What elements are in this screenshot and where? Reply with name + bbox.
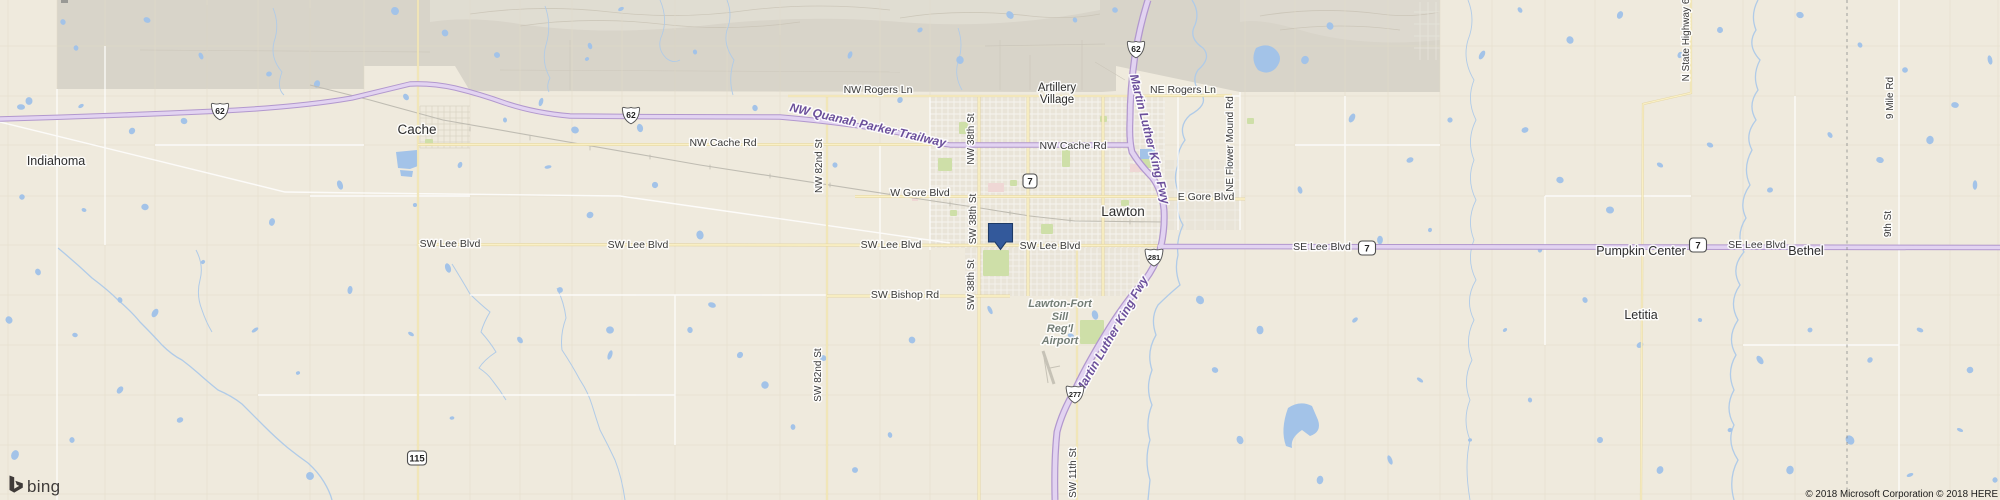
svg-text:NW Rogers Ln: NW Rogers Ln	[844, 84, 913, 96]
svg-text:SW Lee Blvd: SW Lee Blvd	[1020, 240, 1081, 252]
svg-text:9th St: 9th St	[1883, 211, 1894, 237]
svg-text:Bethel: Bethel	[1788, 244, 1823, 258]
svg-text:62: 62	[1131, 44, 1141, 54]
svg-text:Cache: Cache	[397, 122, 436, 137]
svg-text:© 2018 Microsoft Corporation ©: © 2018 Microsoft Corporation © 2018 HERE	[1805, 489, 1998, 500]
svg-text:NE Flower Mound Rd: NE Flower Mound Rd	[1225, 96, 1236, 192]
svg-text:NW Cache Rd: NW Cache Rd	[689, 137, 756, 149]
svg-text:Lawton: Lawton	[1101, 204, 1145, 219]
svg-text:SW Lee Blvd: SW Lee Blvd	[608, 239, 669, 251]
svg-text:SW Bishop Rd: SW Bishop Rd	[871, 289, 939, 301]
svg-text:E Gore Blvd: E Gore Blvd	[1178, 191, 1235, 203]
svg-text:277: 277	[1069, 390, 1081, 399]
svg-text:Artillery: Artillery	[1038, 82, 1077, 94]
svg-text:62: 62	[626, 110, 636, 120]
svg-text:bing: bing	[27, 477, 60, 496]
svg-text:Indiahoma: Indiahoma	[27, 154, 85, 168]
svg-text:N State Highway 6: N State Highway 6	[1681, 0, 1692, 81]
svg-text:SE Lee Blvd: SE Lee Blvd	[1293, 241, 1351, 253]
svg-text:7: 7	[1027, 177, 1032, 188]
svg-text:7: 7	[1695, 241, 1700, 252]
svg-text:9 Mile Rd: 9 Mile Rd	[1885, 77, 1896, 119]
svg-text:SW 38th St: SW 38th St	[968, 193, 979, 244]
svg-text:SW 11th St: SW 11th St	[1068, 448, 1079, 498]
svg-text:NW 38th St: NW 38th St	[966, 113, 977, 164]
svg-text:SW 82nd St: SW 82nd St	[813, 348, 824, 402]
svg-text:SW Lee Blvd: SW Lee Blvd	[861, 239, 922, 251]
svg-text:NW Cache Rd: NW Cache Rd	[1039, 140, 1106, 152]
svg-text:Airport: Airport	[1041, 335, 1080, 347]
svg-text:Village: Village	[1040, 94, 1074, 106]
svg-text:SW Lee Blvd: SW Lee Blvd	[420, 238, 481, 250]
svg-text:SE Lee Blvd: SE Lee Blvd	[1728, 239, 1786, 251]
svg-text:Sill: Sill	[1052, 311, 1069, 323]
svg-text:NW 82nd St: NW 82nd St	[814, 139, 825, 193]
svg-text:NE Rogers Ln: NE Rogers Ln	[1150, 84, 1216, 96]
svg-text:Pumpkin Center: Pumpkin Center	[1596, 244, 1686, 258]
svg-text:62: 62	[215, 106, 225, 116]
svg-text:281: 281	[1148, 253, 1160, 262]
svg-text:115: 115	[409, 454, 425, 465]
svg-text:Lawton-Fort: Lawton-Fort	[1028, 298, 1093, 310]
svg-text:Reg'l: Reg'l	[1047, 323, 1074, 335]
svg-text:7: 7	[1364, 244, 1369, 255]
svg-text:W Gore Blvd: W Gore Blvd	[890, 187, 950, 199]
svg-text:SW 38th St: SW 38th St	[966, 259, 977, 310]
svg-text:Letitia: Letitia	[1624, 308, 1657, 322]
